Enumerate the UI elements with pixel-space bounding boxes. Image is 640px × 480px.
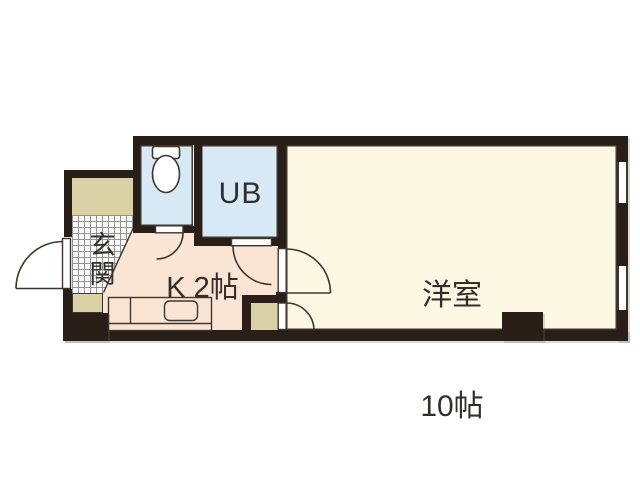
kitchen-label: K 2帖 <box>160 264 245 306</box>
entrance-step-upper <box>72 178 133 215</box>
wall-unitbath-bottom-left <box>194 238 232 246</box>
entrance-label: 玄関 <box>83 231 120 295</box>
western-room-name: 洋室 <box>392 277 512 314</box>
unit-bath-label: UB <box>213 177 268 211</box>
toilet-room-floor <box>140 145 193 226</box>
wall-entrance-top <box>64 170 137 178</box>
wall-unitbath-left <box>194 136 202 246</box>
wall-entrance-left <box>64 170 72 237</box>
wall-bottom-left-block <box>63 313 108 341</box>
floorplan: 玄関 K 2帖 UB 洋室 10帖 <box>0 0 640 480</box>
wall-toilet-bottom-left <box>133 226 155 233</box>
entrance-door-leaf <box>63 239 71 289</box>
window-right-lower <box>617 266 628 310</box>
wall-toilet-left <box>133 136 140 233</box>
entrance-step-lower <box>72 293 103 313</box>
wall-entrance-left-lower <box>63 289 72 315</box>
window-right-upper <box>617 162 628 203</box>
western-room-label: 洋室 10帖 <box>392 203 512 480</box>
wall-bottom <box>63 330 628 341</box>
western-room-size: 10帖 <box>392 388 512 425</box>
wall-top <box>133 136 628 145</box>
toilet-door-leaf <box>156 226 184 233</box>
closet-floor <box>250 303 278 330</box>
wall-partition-upper <box>278 136 286 248</box>
entrance-door-arc <box>16 242 63 289</box>
